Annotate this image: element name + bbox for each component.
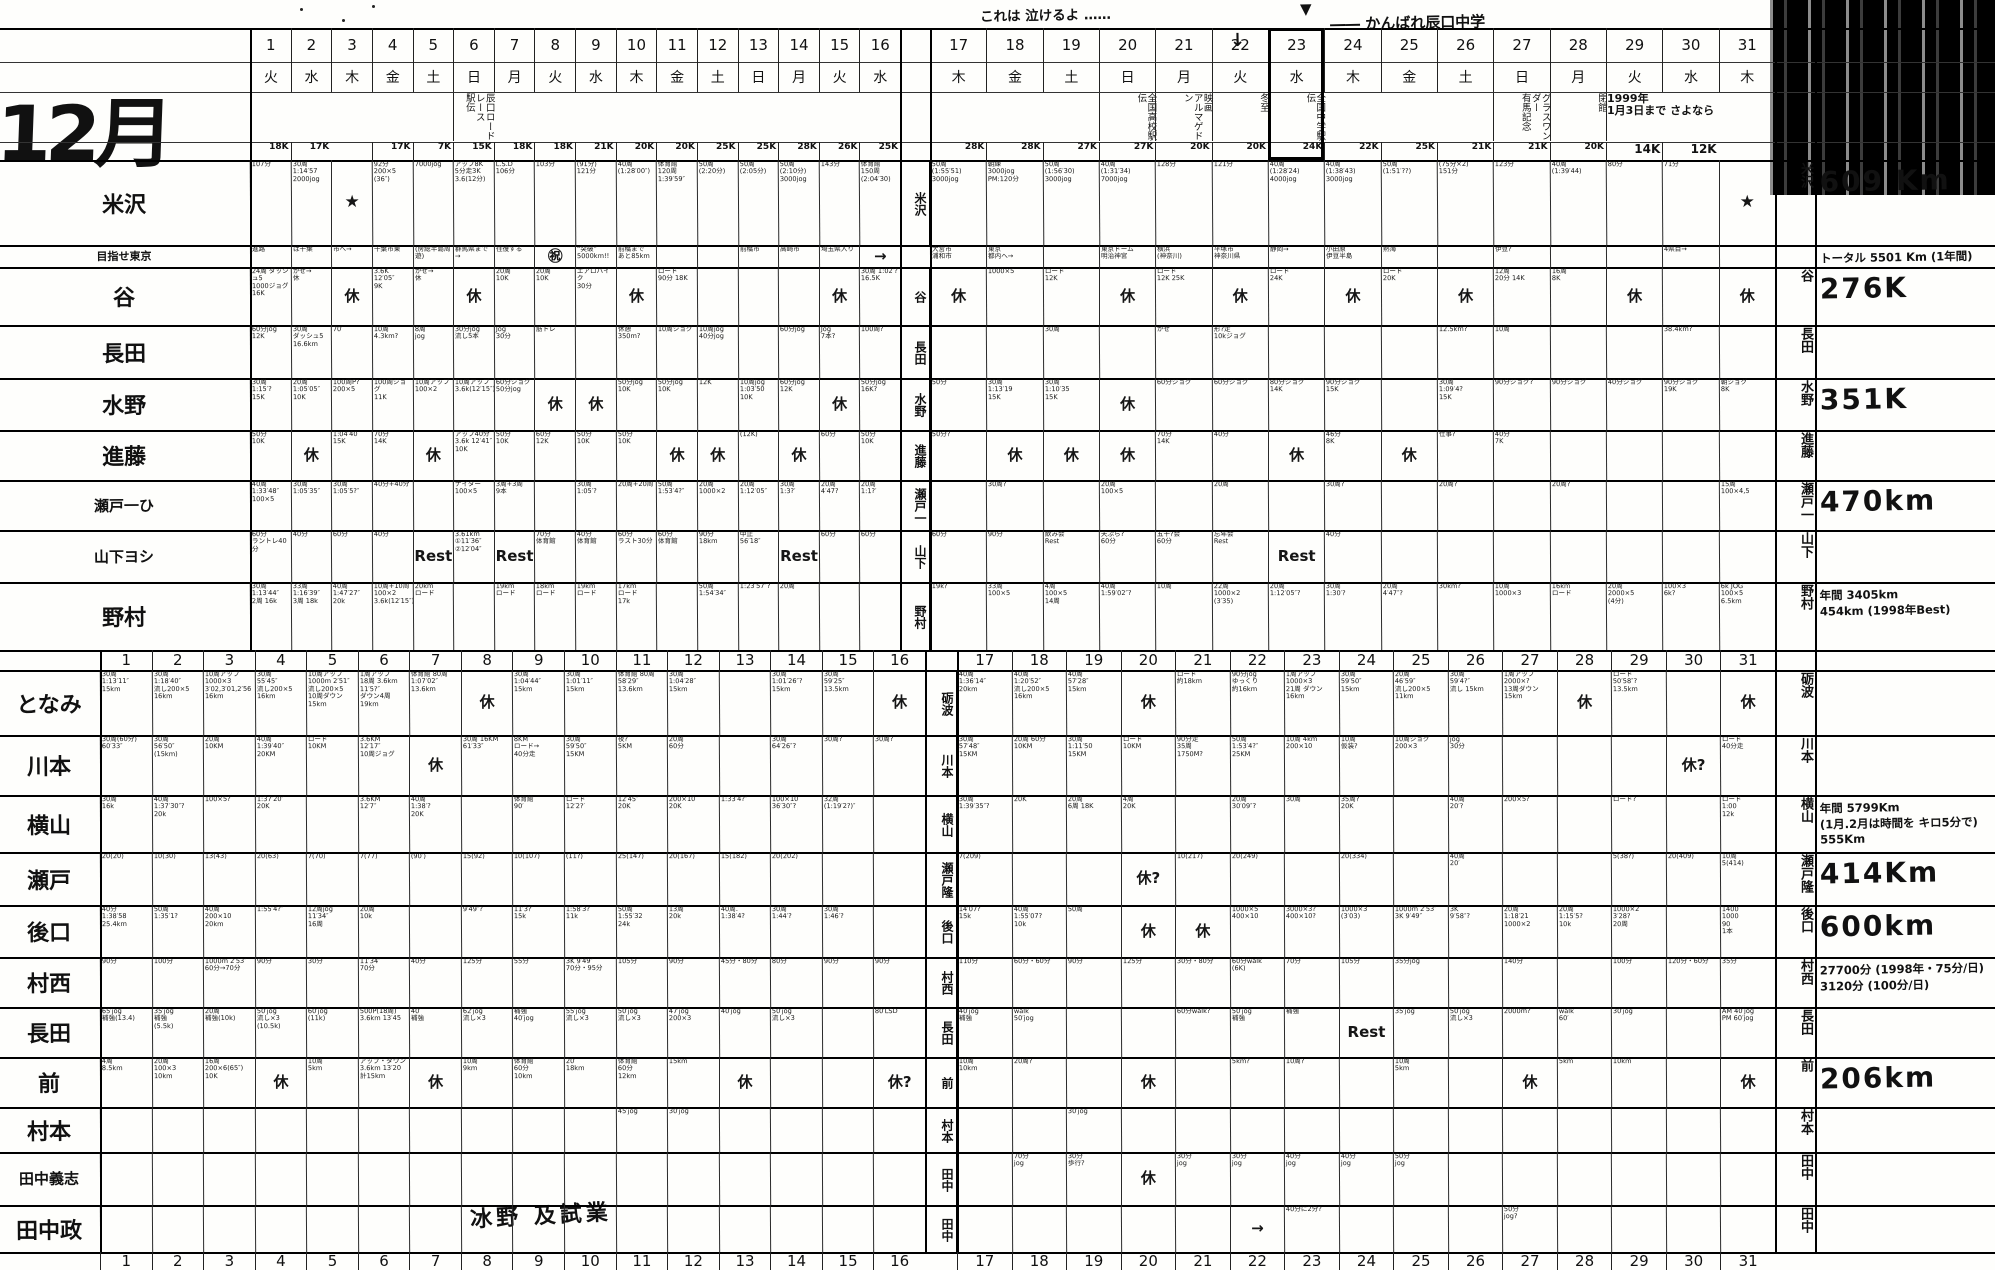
cell-seto-h-d4: 40分+40分 <box>372 480 413 530</box>
planned-distance-day19: 27K <box>1043 142 1099 160</box>
cell-yonezawa-d5: 7000jog <box>412 160 453 245</box>
cell-shindo-d31 <box>1718 430 1775 480</box>
cell-tani-d10: 休 <box>616 267 657 325</box>
cell-muranishi-d14: 80分 <box>770 957 822 1007</box>
weekday-2: 水 <box>291 62 332 92</box>
cell-mizuno-d29: 40分ジョグ <box>1606 378 1663 430</box>
cell-tonami-d22: 90分jog ゆっくり 約16km <box>1229 670 1284 735</box>
cell-tanaka-y-d10 <box>564 1152 616 1205</box>
cell-yonezawa-d21: 128分 <box>1155 160 1212 245</box>
cell-yokoyama-d8 <box>461 795 513 852</box>
upper-day-header-3: 3 <box>331 28 372 62</box>
cell-tanaka-y-d6 <box>358 1152 410 1205</box>
cell-tani-d31: 休 <box>1719 267 1775 325</box>
cell-seto-h-d22: 20周 <box>1211 480 1268 530</box>
upper-day-header-30: 30 <box>1662 28 1718 62</box>
cell-tonami-d12: 30周 1:04′28″ 15km <box>667 670 719 735</box>
cell-mae-d5: 10周 5km <box>306 1057 358 1107</box>
margin-name-seto-h: 瀬戸一 <box>1775 480 1815 530</box>
cell-tonami-d27: 1周アップ 2000×? 13周ダウン 15km <box>1502 670 1557 735</box>
cell-shindo-d4: 70分 14K <box>372 430 413 480</box>
grid-line <box>1775 28 1777 650</box>
cell-muranishi-d20: 125分 <box>1120 957 1175 1007</box>
cell-muranishi-d27: 140分 <box>1502 957 1557 1007</box>
cell-yamashita-d10: 60分 ラスト30分 <box>615 530 656 582</box>
cell-shindo-d17: 50分? <box>930 430 987 480</box>
cell-tanaka-y-d22: 30分 jog <box>1229 1152 1284 1205</box>
cell-seto-h-d3: 30周 1:05′5?″ <box>331 480 372 530</box>
cell-tonami-d26: 30周 59′4?″ 流し 15km <box>1448 670 1503 735</box>
cell-mizuno-d27: 90分ジョグ? <box>1493 378 1550 430</box>
cell-yamashita-d19: 飲み会 Rest <box>1042 530 1099 582</box>
cell-nomura-d19: 4周 100×5 14周 <box>1042 582 1099 650</box>
cell-nomura-d25: 20周 4′47″? <box>1380 582 1437 650</box>
planned-distance-day26: 21K <box>1437 142 1493 160</box>
upper-day-header-12: 12 <box>697 28 738 62</box>
cell-kawamoto-d22: 50周 1:53′4?″ 25KM <box>1229 735 1284 795</box>
cell-seto-h-d26: 20周? <box>1437 480 1494 530</box>
cell-seto-t-d4: 20(63) <box>254 852 306 905</box>
cell-mizuno-d14: 60分jog 12K <box>778 378 819 430</box>
cell-nomura-d8: 18km ロード <box>534 582 575 650</box>
cell-mae-d4: 休 <box>255 1057 307 1107</box>
cell-nagata-u-d5: 8周 jog <box>412 325 453 378</box>
cell-nagata-l-d11: 50′jog 流し×3 <box>615 1007 667 1057</box>
margin-name-mae: 前 <box>1775 1057 1815 1107</box>
cell-muranishi-d10: 3K 9′49″ 70分・95分 <box>564 957 616 1007</box>
cell-tanaka-m-d7 <box>409 1205 461 1252</box>
weekday-14: 月 <box>778 62 819 92</box>
cell-mae-d10: 20′ 18km <box>564 1057 616 1107</box>
cell-ushiroguchi-d1: 40分 1:38′58 25.4km <box>100 905 152 957</box>
runner-name-nomura: 野村 <box>0 581 248 651</box>
cell-tanaka-y-d1 <box>100 1152 152 1205</box>
cell-tanaka-y-d30 <box>1666 1152 1721 1205</box>
cell-muramoto-d29 <box>1611 1107 1666 1152</box>
cell-tanaka-y-d8 <box>461 1152 513 1205</box>
upper-day-header-14: 14 <box>778 28 819 62</box>
ink-dot <box>342 19 345 22</box>
bottom-day-header-28: 28 <box>1557 1252 1612 1270</box>
mid-name-muramoto: 村本 <box>925 1107 957 1152</box>
cell-shindo-d23: 休 <box>1268 430 1324 480</box>
cell-tanaka-y-d13 <box>719 1152 771 1205</box>
weekday-16: 水 <box>859 62 900 92</box>
bottom-day-header-17: 17 <box>957 1252 1012 1270</box>
cell-nagata-u-d14: 60分jog <box>778 325 819 378</box>
cell-muramoto-d10 <box>564 1107 616 1152</box>
cell-ushiroguchi-d17: 14′07? 15k <box>957 905 1012 957</box>
weekday-11: 金 <box>656 62 697 92</box>
cell-nomura-d2: 33周 1:16′39″ 3周 18k <box>290 582 331 650</box>
cell-seto-h-d17 <box>930 480 987 530</box>
cell-muranishi-d22: 60分walk (6K) <box>1229 957 1284 1007</box>
bottom-day-header-12: 12 <box>667 1252 719 1270</box>
cell-tanaka-m-d17 <box>957 1205 1012 1252</box>
cell-tani-d21: ロード 12K 25K <box>1155 267 1212 325</box>
cell-shindo-d30 <box>1662 430 1719 480</box>
cell-nagata-u-d12: 10周jog 40分jog <box>697 325 738 378</box>
bottom-day-header-31: 31 <box>1720 1252 1775 1270</box>
cell-yamashita-d5: Rest <box>413 530 454 582</box>
bottom-day-header-30: 30 <box>1666 1252 1721 1270</box>
cell-tanaka-y-d14 <box>770 1152 822 1205</box>
cell-nagata-l-d2: 35′jog 補強 (5.5k) <box>151 1007 203 1057</box>
cell-tani-d18: 1000×5 <box>986 267 1043 325</box>
mid-name-ushiroguchi: 後口 <box>925 905 957 957</box>
cell-yamashita-d1: 60分 ラントレ40分 <box>250 530 291 582</box>
cell-seto-t-d17: 7(209) <box>957 852 1012 905</box>
cell-progress-d6: 群馬県まで→ <box>453 245 494 267</box>
cell-nomura-d27: 10周 1000×3 <box>1493 582 1550 650</box>
cell-muranishi-d31: 35分 <box>1720 957 1775 1007</box>
cell-tanaka-m-d9 <box>512 1205 564 1252</box>
cell-yokoyama-d20: 4周 20K <box>1120 795 1175 852</box>
cell-seto-t-d18 <box>1011 852 1066 905</box>
cell-mae-d26 <box>1448 1057 1503 1107</box>
cell-tanaka-y-d28 <box>1557 1152 1612 1205</box>
upper-day-header-17: 17 <box>930 28 986 62</box>
cell-yonezawa-d26: (75分×2) 151分 <box>1437 160 1494 245</box>
mid-name-tani: 谷 <box>900 267 930 325</box>
weekday-19: 土 <box>1043 62 1099 92</box>
mid-day-header-19: 19 <box>1066 650 1121 670</box>
cell-seto-h-d15: 20周 4′47? <box>819 480 860 530</box>
bottom-day-header-14: 14 <box>770 1252 822 1270</box>
grid-line <box>1815 650 1817 1252</box>
cell-nagata-u-d13 <box>737 325 778 378</box>
cell-seto-h-d1: 40周 1:33′48″ 100×5 <box>250 480 291 530</box>
weekday-18: 金 <box>986 62 1042 92</box>
cell-mizuno-d25 <box>1380 378 1437 430</box>
cell-progress-d20: 東京ドーム 明治神宮 <box>1099 245 1155 267</box>
grid-line <box>250 28 252 650</box>
bottom-day-header-22: 22 <box>1230 1252 1285 1270</box>
cell-yamashita-d26 <box>1437 530 1494 582</box>
cell-tonami-d18: 40周 1:20′52″ 流し200×5 16km <box>1011 670 1066 735</box>
cell-yokoyama-d3: 100×5? <box>203 795 255 852</box>
cell-mae-d9: 体育館 60分 10km <box>512 1057 564 1107</box>
bottom-day-header-9: 9 <box>512 1252 564 1270</box>
mid-day-header-24: 24 <box>1339 650 1394 670</box>
cell-yamashita-d7: Rest <box>494 530 535 582</box>
cell-kawamoto-d24: 10周 仮装? <box>1338 735 1393 795</box>
cell-progress-d9: “突破” 5000km!! <box>575 245 616 267</box>
runner-name-yokoyama: 横山 <box>0 795 98 853</box>
upper-day-header-20: 20 <box>1099 28 1155 62</box>
cell-yokoyama-d29: ロード? <box>1611 795 1666 852</box>
cell-tonami-d16: 休 <box>873 670 925 735</box>
bottom-day-header-3: 3 <box>203 1252 255 1270</box>
cell-mae-d1: 4周 8.5km <box>100 1057 152 1107</box>
cell-nagata-u-d18 <box>986 325 1043 378</box>
runner-name-mae: 前 <box>0 1057 98 1108</box>
cell-kawamoto-d10: 30周 59′50″ 15KM <box>564 735 616 795</box>
upper-day-header-31: 31 <box>1719 28 1775 62</box>
cell-tonami-d8: 休 <box>461 670 513 735</box>
cell-tanaka-y-d27 <box>1502 1152 1557 1205</box>
bottom-day-header-21: 21 <box>1175 1252 1230 1270</box>
mid-day-header-12: 12 <box>667 650 719 670</box>
cell-yonezawa-d30: 71分 <box>1662 160 1719 245</box>
cell-muramoto-d1 <box>100 1107 152 1152</box>
cell-nagata-u-d7: Jog 30分 <box>494 325 535 378</box>
cell-seto-t-d2: 10(30) <box>151 852 203 905</box>
mid-name-tanaka-y: 田中 <box>925 1152 957 1205</box>
cell-muramoto-d2 <box>151 1107 203 1152</box>
cell-yonezawa-d15: 143分 <box>819 160 860 245</box>
cell-yamashita-d17: 60分 <box>930 530 987 582</box>
mid-name-shindo: 進藤 <box>900 430 930 480</box>
planned-distance-day4: 17K <box>372 142 413 160</box>
margin-name-yonezawa: 米沢 <box>1775 160 1815 245</box>
cell-ushiroguchi-d31: 1400 1000 90 1本 <box>1720 905 1775 957</box>
cell-tanaka-m-d5 <box>306 1205 358 1252</box>
cell-nagata-l-d1: 65′jog 補強(13.4) <box>100 1007 152 1057</box>
mid-day-header-31: 31 <box>1720 650 1775 670</box>
cell-yonezawa-d9: (91分) 121分 <box>575 160 616 245</box>
cell-seto-t-d1: 20(20) <box>100 852 152 905</box>
weekday-8: 火 <box>534 62 575 92</box>
cell-mizuno-d24: 90分ジョグ 15K <box>1324 378 1381 430</box>
cell-tani-d4: 3.6K 12′05″ 9K <box>372 267 413 325</box>
planned-distance-day1: 18K <box>250 142 291 160</box>
cell-muramoto-d24 <box>1339 1107 1394 1152</box>
cell-mizuno-d15: 休 <box>819 378 860 430</box>
cell-seto-t-d23 <box>1284 852 1339 905</box>
cell-nomura-d9: 19km ロード <box>575 582 616 650</box>
cell-mae-d28: 5km <box>1557 1057 1612 1107</box>
cell-progress-d22: 平塚市 神奈川県 <box>1212 245 1268 267</box>
margin-name-muramoto: 村本 <box>1775 1107 1815 1152</box>
upper-day-header-22: 22 <box>1212 28 1268 62</box>
cell-tanaka-y-d19: 30分 歩行? <box>1066 1152 1121 1205</box>
cell-nagata-l-d29: 30′jog <box>1611 1007 1666 1057</box>
cell-progress-d13: 前橋市 <box>737 245 778 267</box>
cell-nomura-d31: 6k JOG 100×5 6.5km <box>1718 582 1775 650</box>
weekday-29: 火 <box>1606 62 1662 92</box>
mid-day-header-3: 3 <box>203 650 255 670</box>
cell-shindo-d11: 休 <box>656 430 697 480</box>
cell-mizuno-d28: 90分ジョグ <box>1549 378 1606 430</box>
runner-name-ushiroguchi: 後口 <box>0 905 98 958</box>
cell-yokoyama-d15: 32周 (1:19′2?)″ <box>822 795 874 852</box>
cell-muranishi-d28 <box>1557 957 1612 1007</box>
cell-tanaka-m-d4 <box>255 1205 307 1252</box>
runner-name-seto-t: 瀬戸 <box>0 852 98 906</box>
cell-seto-h-d30 <box>1662 480 1719 530</box>
cell-seto-h-d23 <box>1268 480 1325 530</box>
mid-name-seto-h: 瀬戸一 <box>900 480 930 530</box>
cry-annotation: これは 泣けるよ ‥‥‥ <box>980 3 1111 25</box>
planned-distance-day5: 7K <box>413 142 454 160</box>
cell-yamashita-d29 <box>1606 530 1663 582</box>
cell-nagata-u-d2: 30周 ダッシュ5 16.6km <box>290 325 331 378</box>
cell-ushiroguchi-d16 <box>873 905 925 957</box>
cell-nomura-d22: 22周 1000×2 (3′35) <box>1211 582 1268 650</box>
mid-day-header-25: 25 <box>1393 650 1448 670</box>
cell-nomura-d6 <box>453 582 494 650</box>
cell-seto-h-d2: 30周 1:05′35″ <box>290 480 331 530</box>
runner-name-tanaka-y: 田中義志 <box>0 1152 98 1206</box>
cell-mizuno-d31: 朝ジョグ 8K <box>1718 378 1775 430</box>
cell-nagata-u-d9 <box>575 325 616 378</box>
cell-kawamoto-d26: jog 30分 <box>1448 735 1503 795</box>
cell-muramoto-d4 <box>255 1107 307 1152</box>
cell-seto-t-d5: 7(70) <box>306 852 358 905</box>
cell-tonami-d19: 40周 57′28″ 15km <box>1066 670 1121 735</box>
cell-ushiroguchi-d21: 休 <box>1175 905 1230 957</box>
cell-tonami-d10: 30周 1:01′11″ 15km <box>564 670 616 735</box>
cell-mizuno-d13: 10周jog 1:03′50 10K <box>737 378 778 430</box>
bottom-day-header-1: 1 <box>100 1252 152 1270</box>
cell-mae-d23: 10周? <box>1284 1057 1339 1107</box>
cell-nomura-d10: 17km ロード 17k <box>615 582 656 650</box>
cell-mae-d27: 休 <box>1502 1057 1557 1107</box>
upper-day-header-15: 15 <box>819 28 860 62</box>
cell-mizuno-d8: 休 <box>534 378 575 430</box>
event-note-day20: 全国高校駅伝 <box>1099 93 1155 141</box>
cell-nagata-l-d27: 2000m? <box>1502 1007 1557 1057</box>
cell-ushiroguchi-d8: 9′49″? <box>461 905 513 957</box>
runner-name-mizuno: 水野 <box>0 377 248 431</box>
upper-day-header-19: 19 <box>1043 28 1099 62</box>
cell-muramoto-d30 <box>1666 1107 1721 1152</box>
cell-tonami-d30 <box>1666 670 1721 735</box>
cell-tanaka-m-d23: 40分に2分? <box>1284 1205 1339 1252</box>
cell-tani-d20: 休 <box>1099 267 1155 325</box>
cell-tanaka-m-d1 <box>100 1205 152 1252</box>
cell-kawamoto-d15: 30周? <box>822 735 874 795</box>
cell-seto-t-d11: 25(147) <box>615 852 667 905</box>
cell-shindo-d6: アップ40分 3.6k 12′41″ 10K <box>453 430 494 480</box>
cell-progress-d1: 進路 <box>250 245 291 267</box>
cell-tanaka-y-d20: 休 <box>1121 1152 1176 1205</box>
cell-seto-h-d18: 30周? <box>986 480 1043 530</box>
mid-day-header-22: 22 <box>1230 650 1285 670</box>
cell-ushiroguchi-d6: 20周 10k <box>358 905 410 957</box>
cell-nagata-l-d21: 60分walk? <box>1175 1007 1230 1057</box>
cell-muramoto-d8 <box>461 1107 513 1152</box>
cell-seto-h-d12: 20周 1000×2 <box>697 480 738 530</box>
runner-name-tani: 谷 <box>0 266 248 326</box>
cell-yamashita-d18: 90分 <box>986 530 1043 582</box>
event-note-day27: グラスワンダー 有馬記念 <box>1493 93 1549 141</box>
cell-kawamoto-d5: ロード 10KM <box>306 735 358 795</box>
training-log-scan: 12月 これは 泣けるよ ‥‥‥ ↓ ―― かんばれ辰口中学 ▼ 冰野 及試業 … <box>0 0 1995 1270</box>
cell-muranishi-d4: 90分 <box>254 957 306 1007</box>
cell-kawamoto-d30: 休? <box>1666 735 1721 795</box>
cell-kawamoto-d3: 20周 10KM <box>203 735 255 795</box>
cell-yonezawa-d28: 40周 (1:39′44) <box>1549 160 1606 245</box>
mid-name-mae: 前 <box>925 1057 957 1107</box>
runner-name-muramoto: 村本 <box>0 1107 98 1153</box>
cell-tanaka-y-d29 <box>1611 1152 1666 1205</box>
mid-day-header-5: 5 <box>306 650 358 670</box>
cell-kawamoto-d29 <box>1611 735 1666 795</box>
cell-seto-t-d27 <box>1502 852 1557 905</box>
cell-yokoyama-d2: 40周 1:37′30″? 20k <box>151 795 203 852</box>
cell-seto-h-d31: 15周 100×4,5 <box>1718 480 1775 530</box>
cell-tanaka-m-d21 <box>1175 1205 1230 1252</box>
cell-yokoyama-d21 <box>1175 795 1230 852</box>
weekday-25: 金 <box>1381 62 1437 92</box>
mid-name-tonami: 砺波 <box>925 670 957 735</box>
mid-day-header-2: 2 <box>152 650 204 670</box>
cell-seto-t-d12: 20(167) <box>667 852 719 905</box>
cell-nagata-u-d24 <box>1324 325 1381 378</box>
cell-tani-d22: 休 <box>1212 267 1268 325</box>
cell-mae-d20: 休 <box>1121 1057 1176 1107</box>
cell-tonami-d20: 休 <box>1121 670 1176 735</box>
cell-tanaka-y-d23: 40分 jog <box>1284 1152 1339 1205</box>
bottom-day-header-15: 15 <box>822 1252 874 1270</box>
cell-shindo-d10: 50分 10K <box>615 430 656 480</box>
weekday-24: 木 <box>1324 62 1380 92</box>
cell-yamashita-d12: 90分 18km <box>697 530 738 582</box>
margin-name-tanaka-y: 田中 <box>1775 1152 1815 1205</box>
cell-nagata-l-d12: 47′jog 200×3 <box>667 1007 719 1057</box>
cell-tani-d29: 休 <box>1606 267 1662 325</box>
cell-tanaka-y-d4 <box>254 1152 306 1205</box>
cell-seto-h-d20: 20周 100×5 <box>1099 480 1156 530</box>
cell-mae-d22: 5km? <box>1229 1057 1284 1107</box>
cell-muramoto-d3 <box>203 1107 255 1152</box>
mid-name-tanaka-m: 田中 <box>925 1205 957 1252</box>
cell-progress-d17: 大宮市 浦和市 <box>930 245 986 267</box>
cell-mizuno-d2: 20周 1:05′05″ 10K <box>290 378 331 430</box>
cell-seto-h-d21 <box>1155 480 1212 530</box>
cell-nomura-d1: 30周 1:13′44″ 2周 16k <box>250 582 291 650</box>
cell-yonezawa-d19: 50周 (1:56′30) 3000jog <box>1042 160 1099 245</box>
cell-ushiroguchi-d24: 1000×3 (3′03) <box>1339 905 1394 957</box>
mid-day-header-13: 13 <box>719 650 771 670</box>
cell-tonami-d25: 20周 46′59″ 流し200×5 11km <box>1393 670 1448 735</box>
cell-seto-t-d3: 13(43) <box>203 852 255 905</box>
planned-distance-day17: 28K <box>930 142 986 160</box>
cell-tonami-d3: 10周アップ 1000×3 3′02,3′01,2′56 16km <box>203 670 255 735</box>
cell-progress-d18: 東京 都内へ→ <box>986 245 1042 267</box>
event-note-day28: 閉館 <box>1550 93 1606 141</box>
weekday-13: 日 <box>738 62 779 92</box>
cell-nomura-d18: 33周 100×5 <box>986 582 1043 650</box>
weekday-12: 土 <box>697 62 738 92</box>
grid-line <box>1775 650 1777 1252</box>
bottom-day-header-29: 29 <box>1611 1252 1666 1270</box>
cell-tani-d27: 12周 20分 14K <box>1493 267 1550 325</box>
cell-yokoyama-d12: 200×10 20K <box>667 795 719 852</box>
cell-nomura-d12: 50周 1:54′34″ <box>697 582 738 650</box>
cell-kawamoto-d18: 20周 60分 10KM <box>1011 735 1066 795</box>
cell-tanaka-m-d18 <box>1011 1205 1066 1252</box>
cell-kawamoto-d20: ロード 10KM <box>1120 735 1175 795</box>
cell-tani-d24: 休 <box>1324 267 1380 325</box>
cell-nagata-l-d20 <box>1120 1007 1175 1057</box>
cell-seto-h-d14: 30周 1:3?′ <box>778 480 819 530</box>
mid-day-header-27: 27 <box>1502 650 1557 670</box>
cell-mae-d24 <box>1339 1057 1394 1107</box>
cell-nagata-l-d5: 60′jog (11k) <box>306 1007 358 1057</box>
cell-nagata-l-d19 <box>1066 1007 1121 1057</box>
bottom-day-header-26: 26 <box>1448 1252 1503 1270</box>
monthly-total-tani: 276K <box>1820 270 1993 327</box>
upper-day-header-8: 8 <box>534 28 575 62</box>
cell-nagata-u-d28 <box>1549 325 1606 378</box>
cell-yokoyama-d31: ロード 1:00 12k <box>1720 795 1775 852</box>
runner-name-nagata-l: 長田 <box>0 1007 98 1058</box>
cell-nomura-d3: 40周 1:47′27″ 20k <box>331 582 372 650</box>
cell-seto-h-d5 <box>412 480 453 530</box>
